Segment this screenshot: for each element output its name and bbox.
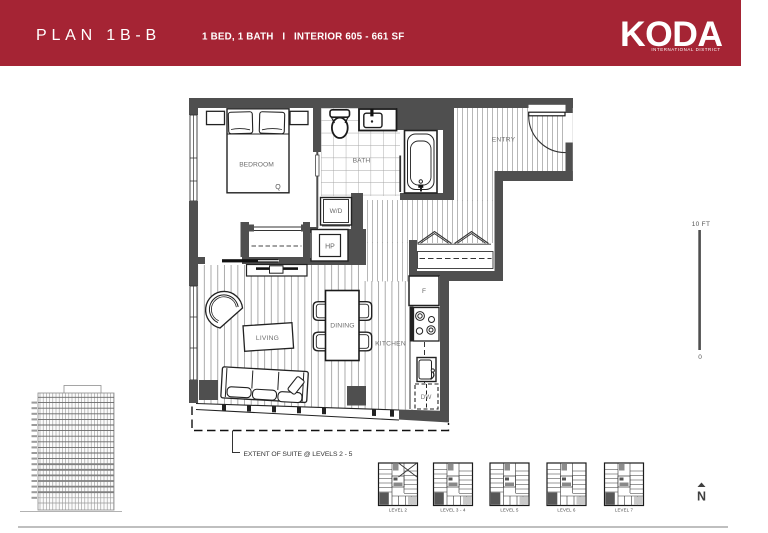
svg-text:BEDROOM: BEDROOM <box>239 162 274 169</box>
svg-text:0: 0 <box>698 354 702 361</box>
svg-text:EXTENT OF SUITE @ LEVELS 2 - 5: EXTENT OF SUITE @ LEVELS 2 - 5 <box>244 451 353 458</box>
svg-text:10 FT: 10 FT <box>692 221 710 228</box>
svg-text:ENTRY: ENTRY <box>492 137 516 144</box>
svg-text:N: N <box>697 490 706 504</box>
svg-text:LEVEL 2: LEVEL 2 <box>389 508 408 513</box>
svg-text:LEVEL 6: LEVEL 6 <box>557 508 576 513</box>
svg-text:LEVEL 3 - 4: LEVEL 3 - 4 <box>440 508 466 513</box>
svg-text:Q: Q <box>275 184 281 191</box>
svg-text:PLAN 1B-B: PLAN 1B-B <box>36 27 161 44</box>
svg-text:DW: DW <box>421 394 433 401</box>
svg-text:1 BED, 1 BATH I INTERIOR 6: 1 BED, 1 BATH I INTERIOR 605 - 661 SF <box>202 32 404 43</box>
svg-text:LEVEL 7: LEVEL 7 <box>615 508 634 513</box>
svg-text:LIVING: LIVING <box>256 335 279 342</box>
svg-text:F: F <box>422 288 426 295</box>
svg-text:DINING: DINING <box>330 323 354 330</box>
svg-text:LEVEL 5: LEVEL 5 <box>500 508 519 513</box>
svg-text:KITCHEN: KITCHEN <box>375 341 406 348</box>
svg-text:INTERNATIONAL DISTRICT: INTERNATIONAL DISTRICT <box>651 47 720 52</box>
svg-text:BATH: BATH <box>353 158 371 165</box>
svg-text:HP: HP <box>325 244 335 251</box>
svg-text:W/D: W/D <box>330 208 343 215</box>
